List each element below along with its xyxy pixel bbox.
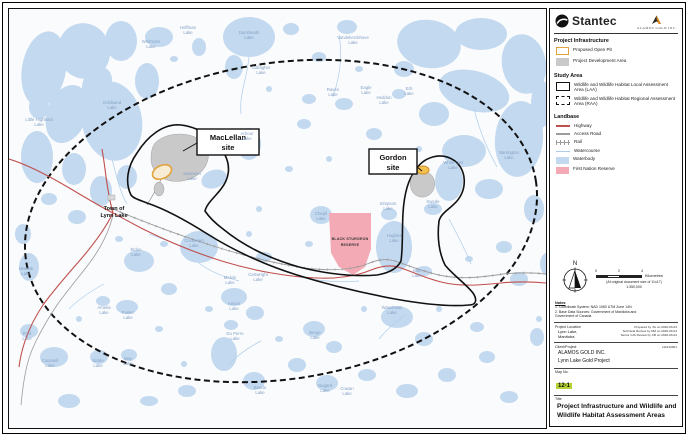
scale-bar: 024 Kilometres (At original document siz… xyxy=(596,269,672,289)
legend-section: Project InfrastructureProposed Open PitP… xyxy=(554,38,678,66)
legend-item: First Nation Reserve xyxy=(556,166,678,174)
lake-label: CartwrightLake xyxy=(248,272,268,282)
laa-swatch xyxy=(556,82,570,91)
lake-label: GallagherLake xyxy=(252,65,271,75)
project-number: 111410001 xyxy=(662,345,677,349)
map-no-value: 12-1 xyxy=(556,383,572,389)
access-road-swatch xyxy=(556,133,570,134)
legend-item-label: Access Road xyxy=(574,131,678,137)
client-project-header: Client/Project xyxy=(555,345,576,349)
scale-ticks: 024 xyxy=(596,269,642,274)
legend-item-label: Wildlife and Wildlife Habitat Local Asse… xyxy=(574,82,678,93)
legend-item-label: Project Development Area xyxy=(573,58,678,64)
lake-label: EldonLake xyxy=(131,247,143,257)
legend-title-panel: Stantec Alamos Gold Inc. Project Infrast… xyxy=(549,8,683,427)
legend-item: Watercourse xyxy=(556,148,678,154)
alamos-wordmark: Alamos Gold Inc. xyxy=(637,26,677,30)
review-credits: Prepared by JG on 2020-03-04Technical Re… xyxy=(621,325,677,340)
lake-label: BeedeLake xyxy=(254,385,267,395)
svg-text:RESERVE: RESERVE xyxy=(341,243,360,247)
map-canvas: MacLellan site Gordon site Town of Lynn … xyxy=(8,8,547,429)
scale-bar-graphic xyxy=(596,275,642,278)
legend-item: Project Development Area xyxy=(556,58,678,67)
map-title: Project Infrastructure and Wildlife and … xyxy=(557,403,677,420)
dev-area-swatch xyxy=(556,58,569,66)
alamos-logo: Alamos Gold Inc. xyxy=(637,15,677,30)
lake-label: PoolLake xyxy=(22,331,32,341)
open-pit-swatch xyxy=(556,47,569,55)
stantec-wordmark: Stantec xyxy=(572,14,617,28)
stantec-swirl-icon xyxy=(555,14,569,28)
legend-item-label: Watercourse xyxy=(574,148,678,154)
lake-label: WhitmoreLake xyxy=(142,39,161,49)
lake-label: VandekerckhoveLake xyxy=(337,35,369,45)
waterbody-swatch xyxy=(556,157,569,164)
legend-item-label: Wildlife and Wildlife Habitat Regional A… xyxy=(574,96,678,107)
legend-section: LandbaseHighwayAccess RoadRailWatercours… xyxy=(554,114,678,174)
title-header: Title xyxy=(555,397,677,401)
project-name: Lynn Lake Gold Project xyxy=(558,358,677,365)
lake-label: AnsonLake xyxy=(228,301,241,311)
legend-item: Highway xyxy=(556,123,678,129)
logo-row: Stantec Alamos Gold Inc. xyxy=(554,12,678,34)
notes-line: Government of Canada xyxy=(555,314,677,319)
town-marker xyxy=(108,195,115,200)
title-row: Title Project Infrastructure and Wildlif… xyxy=(554,395,678,423)
north-arrow-icon: N xyxy=(560,259,590,295)
scale-tick: 2 xyxy=(618,269,620,273)
review-line: Senior GIS Review by CB on 2020-03-04 xyxy=(621,333,677,337)
legend-item: Waterbody xyxy=(556,156,678,164)
legend-item: Proposed Open Pit xyxy=(556,47,678,56)
legend-item-label: Waterbody xyxy=(573,156,678,162)
watercourse-swatch xyxy=(556,151,570,152)
lake-label: FosterLake xyxy=(122,310,135,320)
svg-text:Lynn Lake: Lynn Lake xyxy=(101,213,128,219)
notes-block: Notes 1. Coordinate System: NAD 1983 UTM… xyxy=(554,299,678,322)
notes-lines: 1. Coordinate System: NAD 1983 UTM Zone … xyxy=(555,305,677,319)
legend-item: Access Road xyxy=(556,131,678,137)
legend-section-title: Project Infrastructure xyxy=(554,38,678,44)
map-no-row: Map No. 12-1 xyxy=(554,368,678,395)
map-legend: Project InfrastructureProposed Open PitP… xyxy=(554,38,678,181)
alamos-icon xyxy=(651,15,662,25)
lake-label: HoffmanLake xyxy=(180,25,197,35)
raa-swatch xyxy=(556,96,570,105)
lake-label: HeddonLake xyxy=(376,95,392,105)
lake-label: SimpsonLake xyxy=(380,201,397,211)
legend-item-label: Highway xyxy=(574,123,678,129)
legend-section-title: Landbase xyxy=(554,114,678,120)
client-name: ALAMOS GOLD INC. xyxy=(558,350,677,357)
compass-scale-row: N 024 Kilometres (At original document s… xyxy=(554,259,678,299)
reserve-label: BLACK STURGEON xyxy=(332,237,369,241)
lake-label: CowanLake xyxy=(340,386,354,396)
lake-label: MelvinLake xyxy=(224,275,237,285)
legend-item-label: Rail xyxy=(574,139,678,145)
scale-tick: 0 xyxy=(595,269,597,273)
svg-text:site: site xyxy=(222,143,235,152)
lake-label: RavenLake xyxy=(327,87,340,97)
town-label: Town of xyxy=(104,206,125,212)
client-project-row: Client/Project 111410001 ALAMOS GOLD INC… xyxy=(554,342,678,368)
legend-item: Wildlife and Wildlife Habitat Regional A… xyxy=(556,96,678,107)
svg-text:site: site xyxy=(387,163,400,172)
gordon-site-callout: Gordon site xyxy=(369,149,422,174)
scale-tick: 4 xyxy=(641,269,643,273)
svg-text:N: N xyxy=(573,261,577,267)
stantec-logo: Stantec xyxy=(555,14,617,28)
lake-label: AmeliaLake xyxy=(97,305,111,315)
legend-item-label: Proposed Open Pit xyxy=(573,47,678,53)
lake-label: BergeLake xyxy=(309,330,321,340)
lake-label: MayLake xyxy=(123,356,133,366)
lake-label: ChepilLake xyxy=(315,211,327,221)
gordon-site-label: Gordon xyxy=(379,153,406,162)
highway-swatch xyxy=(556,125,570,127)
legend-item: Wildlife and Wildlife Habitat Local Asse… xyxy=(556,82,678,93)
legend-section: Study AreaWildlife and Wildlife Habitat … xyxy=(554,73,678,107)
legend-item: Rail xyxy=(556,139,678,145)
map-document-page: MacLellan site Gordon site Town of Lynn … xyxy=(0,0,688,436)
legend-item-label: First Nation Reserve xyxy=(573,166,678,172)
project-location-row: Project Location Lynn Lake, Manitoba Pre… xyxy=(554,322,678,342)
lake-label: ErbLake xyxy=(404,86,414,96)
scale-unit: Kilometres xyxy=(645,274,663,278)
lake-label: EagleLake xyxy=(361,85,373,95)
lake-label: SickleLake xyxy=(92,358,104,368)
lake-label: BobLake xyxy=(412,268,422,278)
legend-section-title: Study Area xyxy=(554,73,678,79)
first-nation-reserve-swatch xyxy=(556,167,569,174)
scale-note: (At original document size of 11x17) 1:3… xyxy=(596,280,672,289)
map-no-header: Map No. xyxy=(555,370,677,374)
waterbody-layer xyxy=(15,15,546,408)
lake-label: DugardLake xyxy=(318,383,333,393)
rail-swatch xyxy=(556,140,570,145)
